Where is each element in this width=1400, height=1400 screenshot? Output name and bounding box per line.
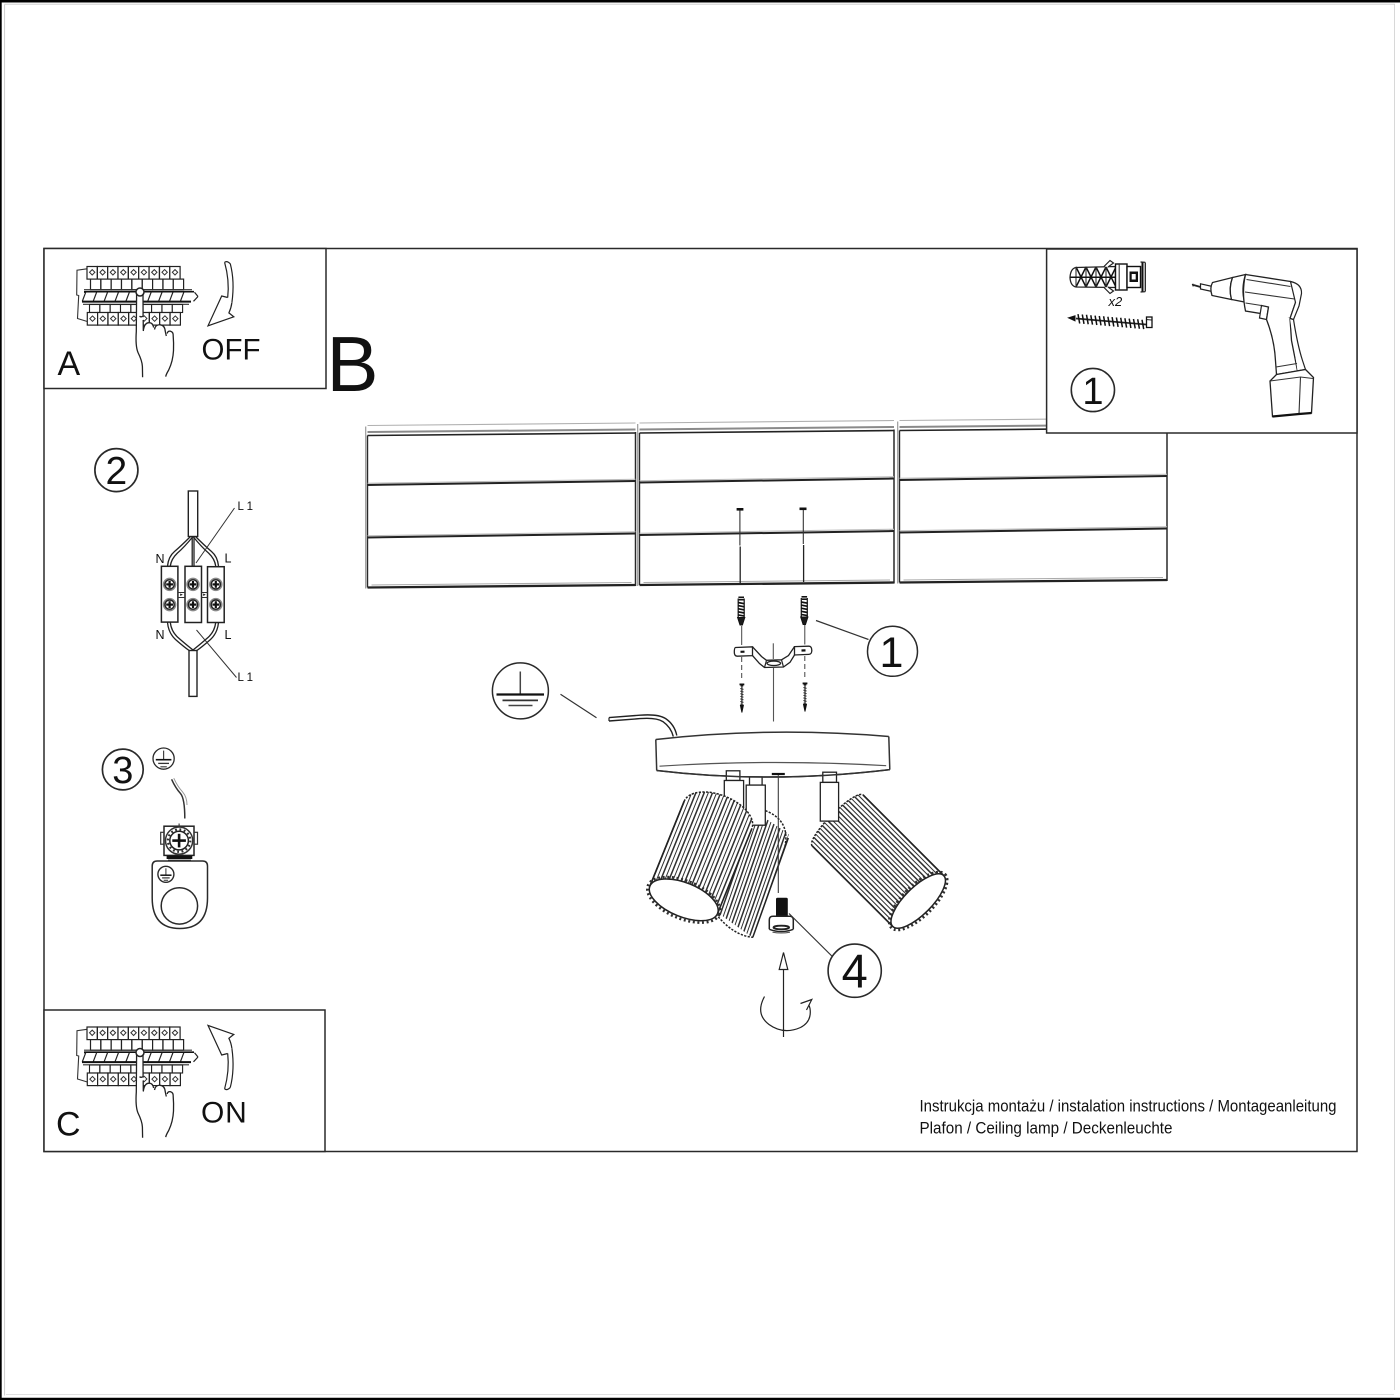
svg-text:L 1: L 1 (238, 672, 254, 684)
svg-text:2: 2 (106, 450, 128, 493)
svg-text:B: B (327, 320, 379, 408)
svg-text:L: L (225, 552, 232, 566)
svg-text:N: N (156, 552, 165, 566)
svg-text:1: 1 (880, 629, 904, 677)
svg-text:4: 4 (842, 945, 868, 998)
svg-text:A: A (58, 345, 81, 383)
svg-text:Plafon / Ceiling lamp / Decken: Plafon / Ceiling lamp / Deckenleuchte (920, 1120, 1173, 1138)
svg-text:x2: x2 (1108, 294, 1124, 309)
svg-text:Instrukcja montażu / instalati: Instrukcja montażu / instalation instruc… (920, 1098, 1337, 1116)
svg-text:N: N (156, 628, 165, 642)
svg-text:ON: ON (201, 1097, 248, 1130)
svg-text:L 1: L 1 (238, 501, 254, 513)
svg-text:3: 3 (112, 750, 133, 792)
svg-text:L: L (225, 628, 232, 642)
svg-text:OFF: OFF (202, 334, 261, 367)
svg-text:C: C (56, 1106, 81, 1144)
svg-text:1: 1 (1082, 371, 1103, 413)
